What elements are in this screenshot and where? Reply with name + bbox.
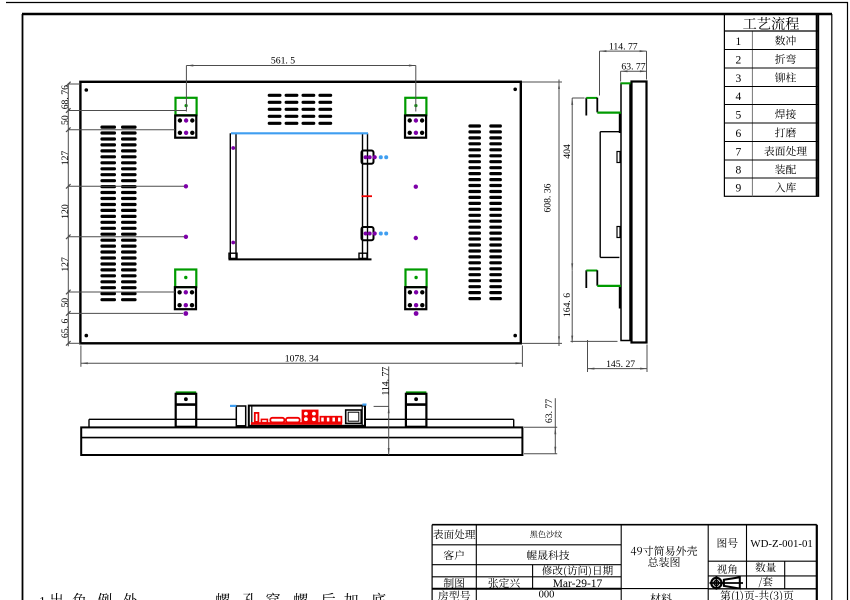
svg-text:114. 77: 114. 77 — [609, 41, 638, 52]
svg-text:404: 404 — [562, 144, 573, 159]
svg-text:1078. 34: 1078. 34 — [285, 353, 319, 364]
svg-text:1.: 1. — [39, 594, 49, 600]
svg-text:561. 5: 561. 5 — [271, 55, 295, 66]
svg-text:6: 6 — [736, 128, 742, 140]
svg-text:1: 1 — [736, 36, 742, 48]
svg-text:164. 6: 164. 6 — [562, 293, 573, 317]
svg-text:65. 6: 65. 6 — [60, 319, 71, 339]
svg-text:5: 5 — [736, 109, 742, 121]
svg-text:145. 27: 145. 27 — [606, 359, 635, 370]
svg-text:50: 50 — [60, 115, 71, 125]
svg-text:Mar-29-17: Mar-29-17 — [553, 578, 603, 590]
svg-text:63. 77: 63. 77 — [621, 62, 645, 73]
svg-text:127: 127 — [60, 151, 71, 166]
svg-text:2: 2 — [736, 54, 742, 66]
svg-text:120: 120 — [60, 204, 71, 219]
svg-text:608. 36: 608. 36 — [543, 183, 554, 212]
svg-text:127: 127 — [60, 257, 71, 272]
svg-text:WD-Z-001-01: WD-Z-001-01 — [750, 538, 812, 550]
svg-text:68. 76: 68. 76 — [60, 85, 71, 109]
svg-text:114. 77: 114. 77 — [380, 367, 391, 396]
svg-text:4: 4 — [736, 91, 742, 103]
svg-text:7: 7 — [736, 146, 742, 158]
svg-text:63. 77: 63. 77 — [544, 399, 555, 423]
svg-text:50: 50 — [60, 298, 71, 308]
svg-text:9: 9 — [736, 183, 742, 195]
svg-text:000: 000 — [539, 590, 555, 600]
svg-text:3: 3 — [736, 73, 742, 85]
svg-text:8: 8 — [736, 165, 742, 177]
